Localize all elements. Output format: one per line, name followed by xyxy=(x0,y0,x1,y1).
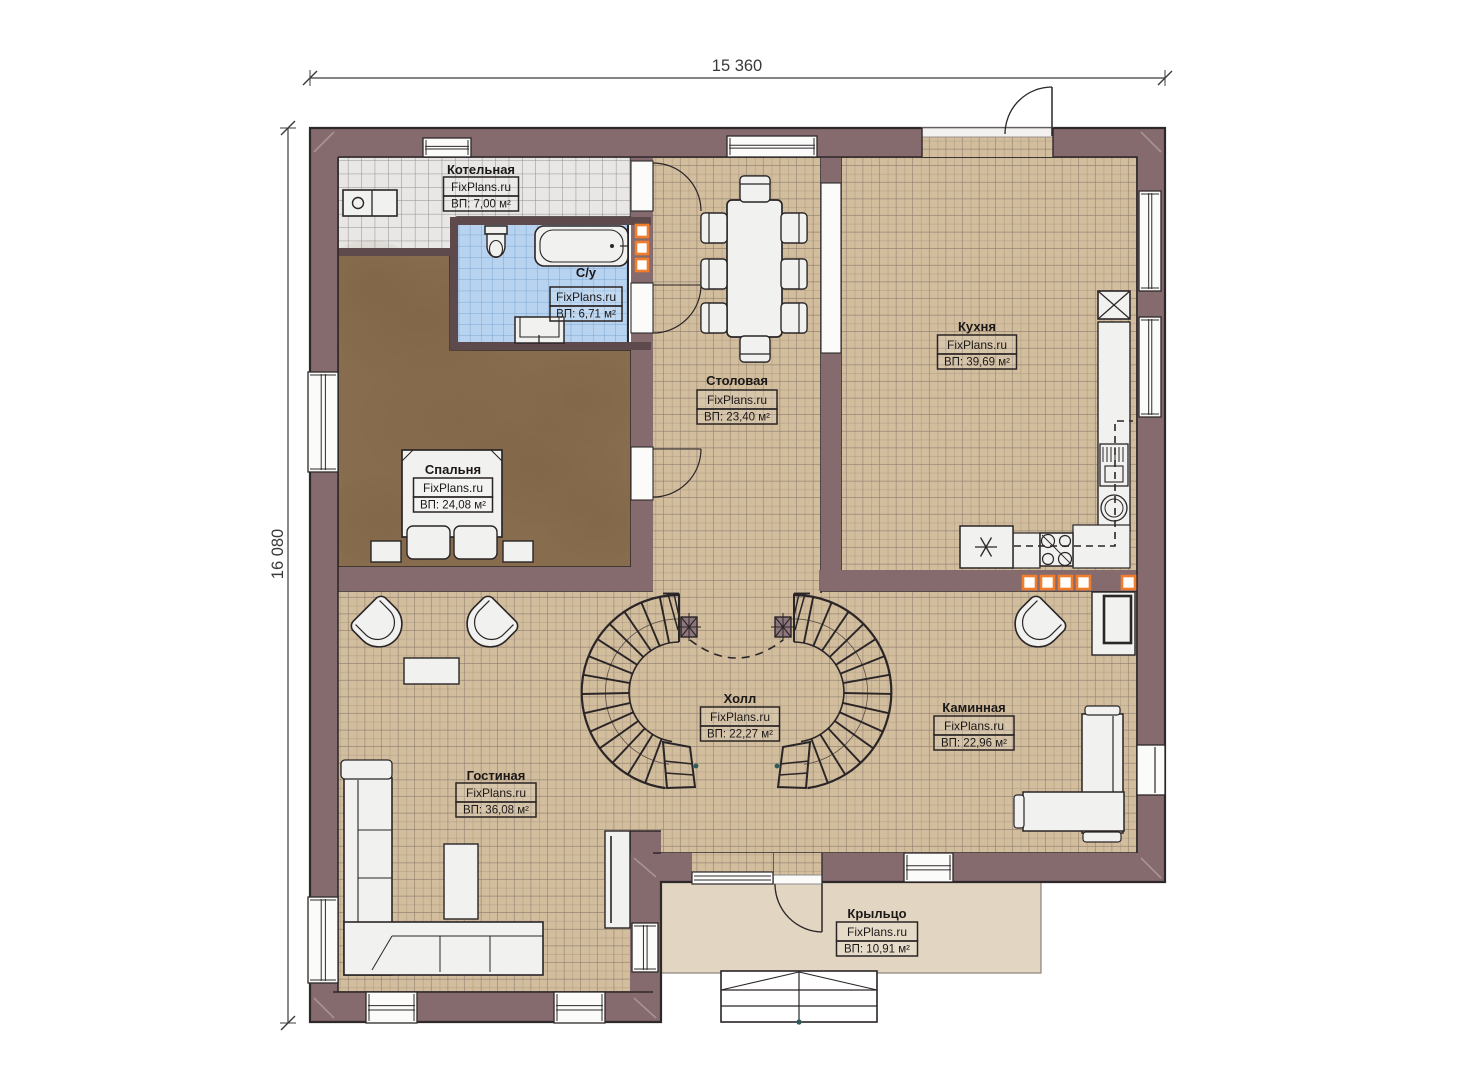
svg-text:FixPlans.ru: FixPlans.ru xyxy=(556,290,616,304)
svg-text:Холл: Холл xyxy=(724,691,757,706)
svg-text:Гостиная: Гостиная xyxy=(467,768,526,783)
svg-text:FixPlans.ru: FixPlans.ru xyxy=(847,925,907,939)
svg-text:16 080: 16 080 xyxy=(269,529,287,579)
svg-text:ВП: 23,40 м²: ВП: 23,40 м² xyxy=(704,412,770,424)
svg-text:FixPlans.ru: FixPlans.ru xyxy=(451,180,511,194)
svg-text:С/у: С/у xyxy=(576,265,597,280)
svg-text:Спальня: Спальня xyxy=(425,462,481,477)
svg-text:ВП: 36,08 м²: ВП: 36,08 м² xyxy=(463,805,529,817)
svg-text:Крыльцо: Крыльцо xyxy=(847,906,906,921)
svg-text:ВП: 22,96 м²: ВП: 22,96 м² xyxy=(941,738,1007,750)
svg-text:ВП: 10,91 м²: ВП: 10,91 м² xyxy=(844,944,910,956)
svg-text:ВП: 22,27 м²: ВП: 22,27 м² xyxy=(707,729,773,741)
svg-text:15 360: 15 360 xyxy=(712,57,762,75)
svg-text:Каминная: Каминная xyxy=(942,700,1005,715)
svg-text:FixPlans.ru: FixPlans.ru xyxy=(944,719,1004,733)
svg-text:ВП: 24,08 м²: ВП: 24,08 м² xyxy=(420,500,486,512)
svg-text:ВП: 39,69 м²: ВП: 39,69 м² xyxy=(944,357,1010,369)
svg-text:Котельная: Котельная xyxy=(447,162,515,177)
svg-text:ВП: 6,71 м²: ВП: 6,71 м² xyxy=(556,309,616,321)
svg-text:ВП: 7,00 м²: ВП: 7,00 м² xyxy=(451,199,511,211)
svg-text:Столовая: Столовая xyxy=(706,373,768,388)
svg-text:FixPlans.ru: FixPlans.ru xyxy=(710,710,770,724)
svg-text:FixPlans.ru: FixPlans.ru xyxy=(466,786,526,800)
svg-text:Кухня: Кухня xyxy=(958,319,996,334)
svg-text:FixPlans.ru: FixPlans.ru xyxy=(707,393,767,407)
svg-text:FixPlans.ru: FixPlans.ru xyxy=(423,481,483,495)
svg-text:FixPlans.ru: FixPlans.ru xyxy=(947,338,1007,352)
